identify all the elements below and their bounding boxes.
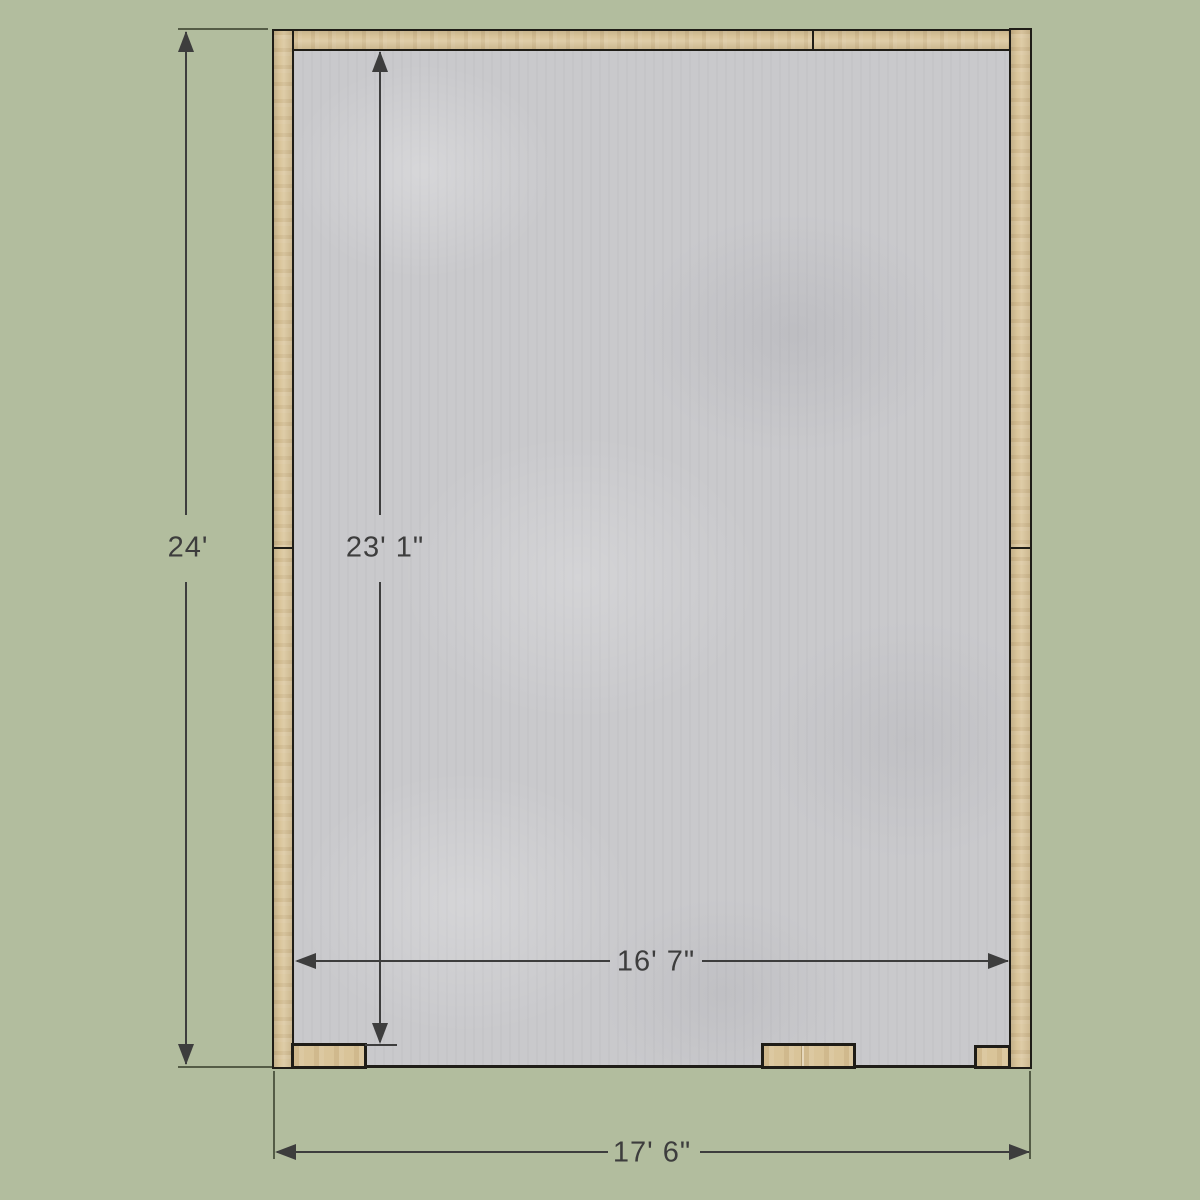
viewport-canvas: 24' 23' 1" 16' 7" 17' 6": [0, 0, 1200, 1200]
arrow-left-icon: [295, 953, 316, 969]
arrow-right-icon: [1009, 1144, 1030, 1160]
dimension-label-overall-height: 24': [168, 532, 209, 565]
dimension-line: [277, 1151, 608, 1153]
bottom-right-stud[interactable]: [974, 1045, 1011, 1069]
extension-line: [178, 28, 268, 30]
bottom-left-stud[interactable]: [291, 1043, 367, 1069]
arrow-down-icon: [372, 1023, 388, 1044]
dimension-line: [379, 582, 381, 1042]
top-wall[interactable]: [292, 29, 1011, 51]
dimension-line: [702, 960, 1008, 962]
right-wall-joint: [1010, 547, 1031, 549]
bottom-center-stud-joint: [802, 1046, 804, 1066]
dimension-line: [185, 32, 187, 515]
arrow-up-icon: [178, 31, 194, 52]
dimension-line: [379, 52, 381, 515]
dimension-line: [297, 960, 610, 962]
extension-line: [178, 1066, 272, 1068]
arrow-down-icon: [178, 1044, 194, 1065]
left-wall[interactable]: [272, 29, 294, 1069]
dimension-line: [700, 1151, 1029, 1153]
right-wall[interactable]: [1009, 28, 1032, 1069]
dimension-line: [185, 582, 187, 1064]
arrow-up-icon: [372, 51, 388, 72]
top-wall-joint: [812, 30, 814, 50]
bottom-center-stud[interactable]: [761, 1043, 856, 1069]
dimension-label-interior-width: 16' 7": [617, 946, 695, 979]
left-wall-joint: [273, 547, 293, 549]
dimension-label-overall-width: 17' 6": [613, 1137, 691, 1170]
extension-line: [365, 1044, 397, 1046]
arrow-right-icon: [988, 953, 1009, 969]
arrow-left-icon: [275, 1144, 296, 1160]
dimension-label-interior-height: 23' 1": [346, 532, 424, 565]
